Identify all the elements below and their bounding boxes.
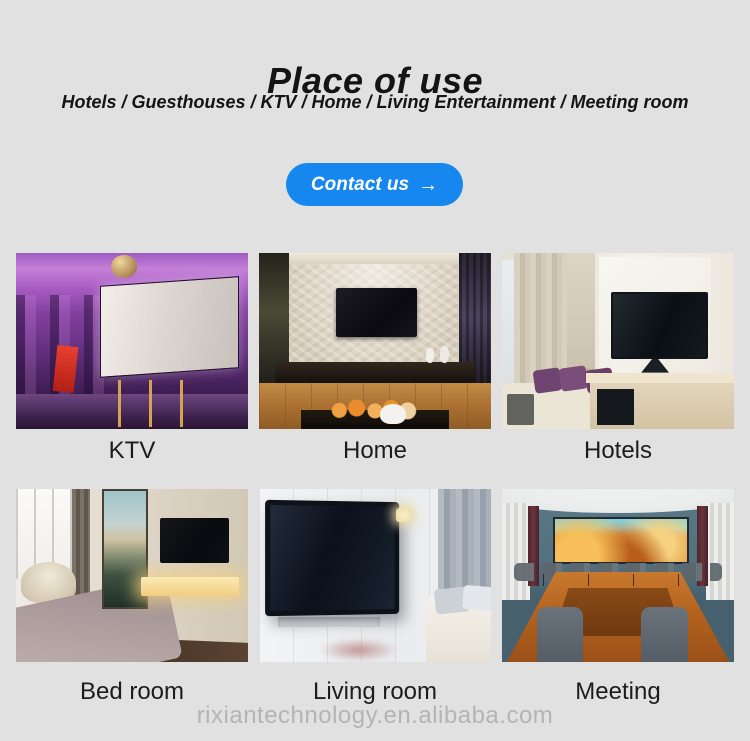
home-tv-screen <box>336 288 417 337</box>
livingroom-tv-screen <box>265 500 399 616</box>
home-ceiling <box>259 253 491 264</box>
home-tv-cabinet <box>275 362 475 383</box>
photo-caption-ktv: KTV <box>16 437 248 465</box>
hotel-desk-top <box>586 373 734 384</box>
place-of-use-section: Place of use Hotels / Guesthouses / KTV … <box>0 0 750 741</box>
home-teapot <box>380 404 406 424</box>
home-vase <box>426 348 434 363</box>
hotel-roman-blind <box>567 253 595 372</box>
livingroom-pillow <box>462 585 491 612</box>
arrow-right-icon: → <box>418 175 438 195</box>
livingroom-foreground-chair <box>319 638 398 662</box>
meeting-led-screen <box>553 517 689 564</box>
contact-us-button[interactable]: Contact us → <box>286 163 463 206</box>
meeting-photo <box>502 489 734 662</box>
home-fruit-bowl <box>324 396 426 421</box>
livingroom-wall-lamp <box>396 508 412 522</box>
hotel-tv-screen <box>611 292 708 359</box>
gallery-card-bedroom: Bed room <box>16 489 248 706</box>
ktv-led-screen <box>100 276 239 377</box>
bedroom-tv-screen <box>160 518 230 563</box>
bedroom-photo <box>16 489 248 662</box>
hotel-side-table <box>507 394 535 426</box>
home-vase <box>440 346 449 363</box>
ktv-photo <box>16 253 248 429</box>
livingroom-photo <box>259 489 491 662</box>
hotel-purple-pillow <box>559 366 589 393</box>
hotels-photo <box>502 253 734 429</box>
gallery-card-home: Home <box>259 253 491 465</box>
bedroom-led-shelf <box>141 577 238 596</box>
ktv-candelabras <box>104 380 188 428</box>
gallery-card-meeting: Meeting <box>502 489 734 706</box>
meeting-foreground-chair <box>641 607 687 662</box>
ktv-disco-ball <box>111 255 137 278</box>
hotel-minibar <box>597 389 634 426</box>
photo-caption-hotels: Hotels <box>502 437 734 465</box>
contact-us-label: Contact us <box>311 174 409 196</box>
home-photo <box>259 253 491 429</box>
use-cases-subtitle: Hotels / Guesthouses / KTV / Home / Livi… <box>0 92 750 113</box>
meeting-foreground-chair <box>537 607 583 662</box>
photo-caption-home: Home <box>259 437 491 465</box>
gallery-card-hotels: Hotels <box>502 253 734 465</box>
gallery-card-ktv: KTV <box>16 253 248 465</box>
gallery-row-bottom: Bed room Living room <box>16 489 734 706</box>
alibaba-watermark: rixiantechnology.en.alibaba.com <box>0 702 750 730</box>
gallery-row-top: KTV Home <box>16 253 734 465</box>
livingroom-wall-niche <box>278 617 380 627</box>
gallery-card-livingroom: Living room <box>259 489 491 706</box>
meeting-microphones <box>521 574 716 586</box>
livingroom-curtain <box>438 489 491 589</box>
